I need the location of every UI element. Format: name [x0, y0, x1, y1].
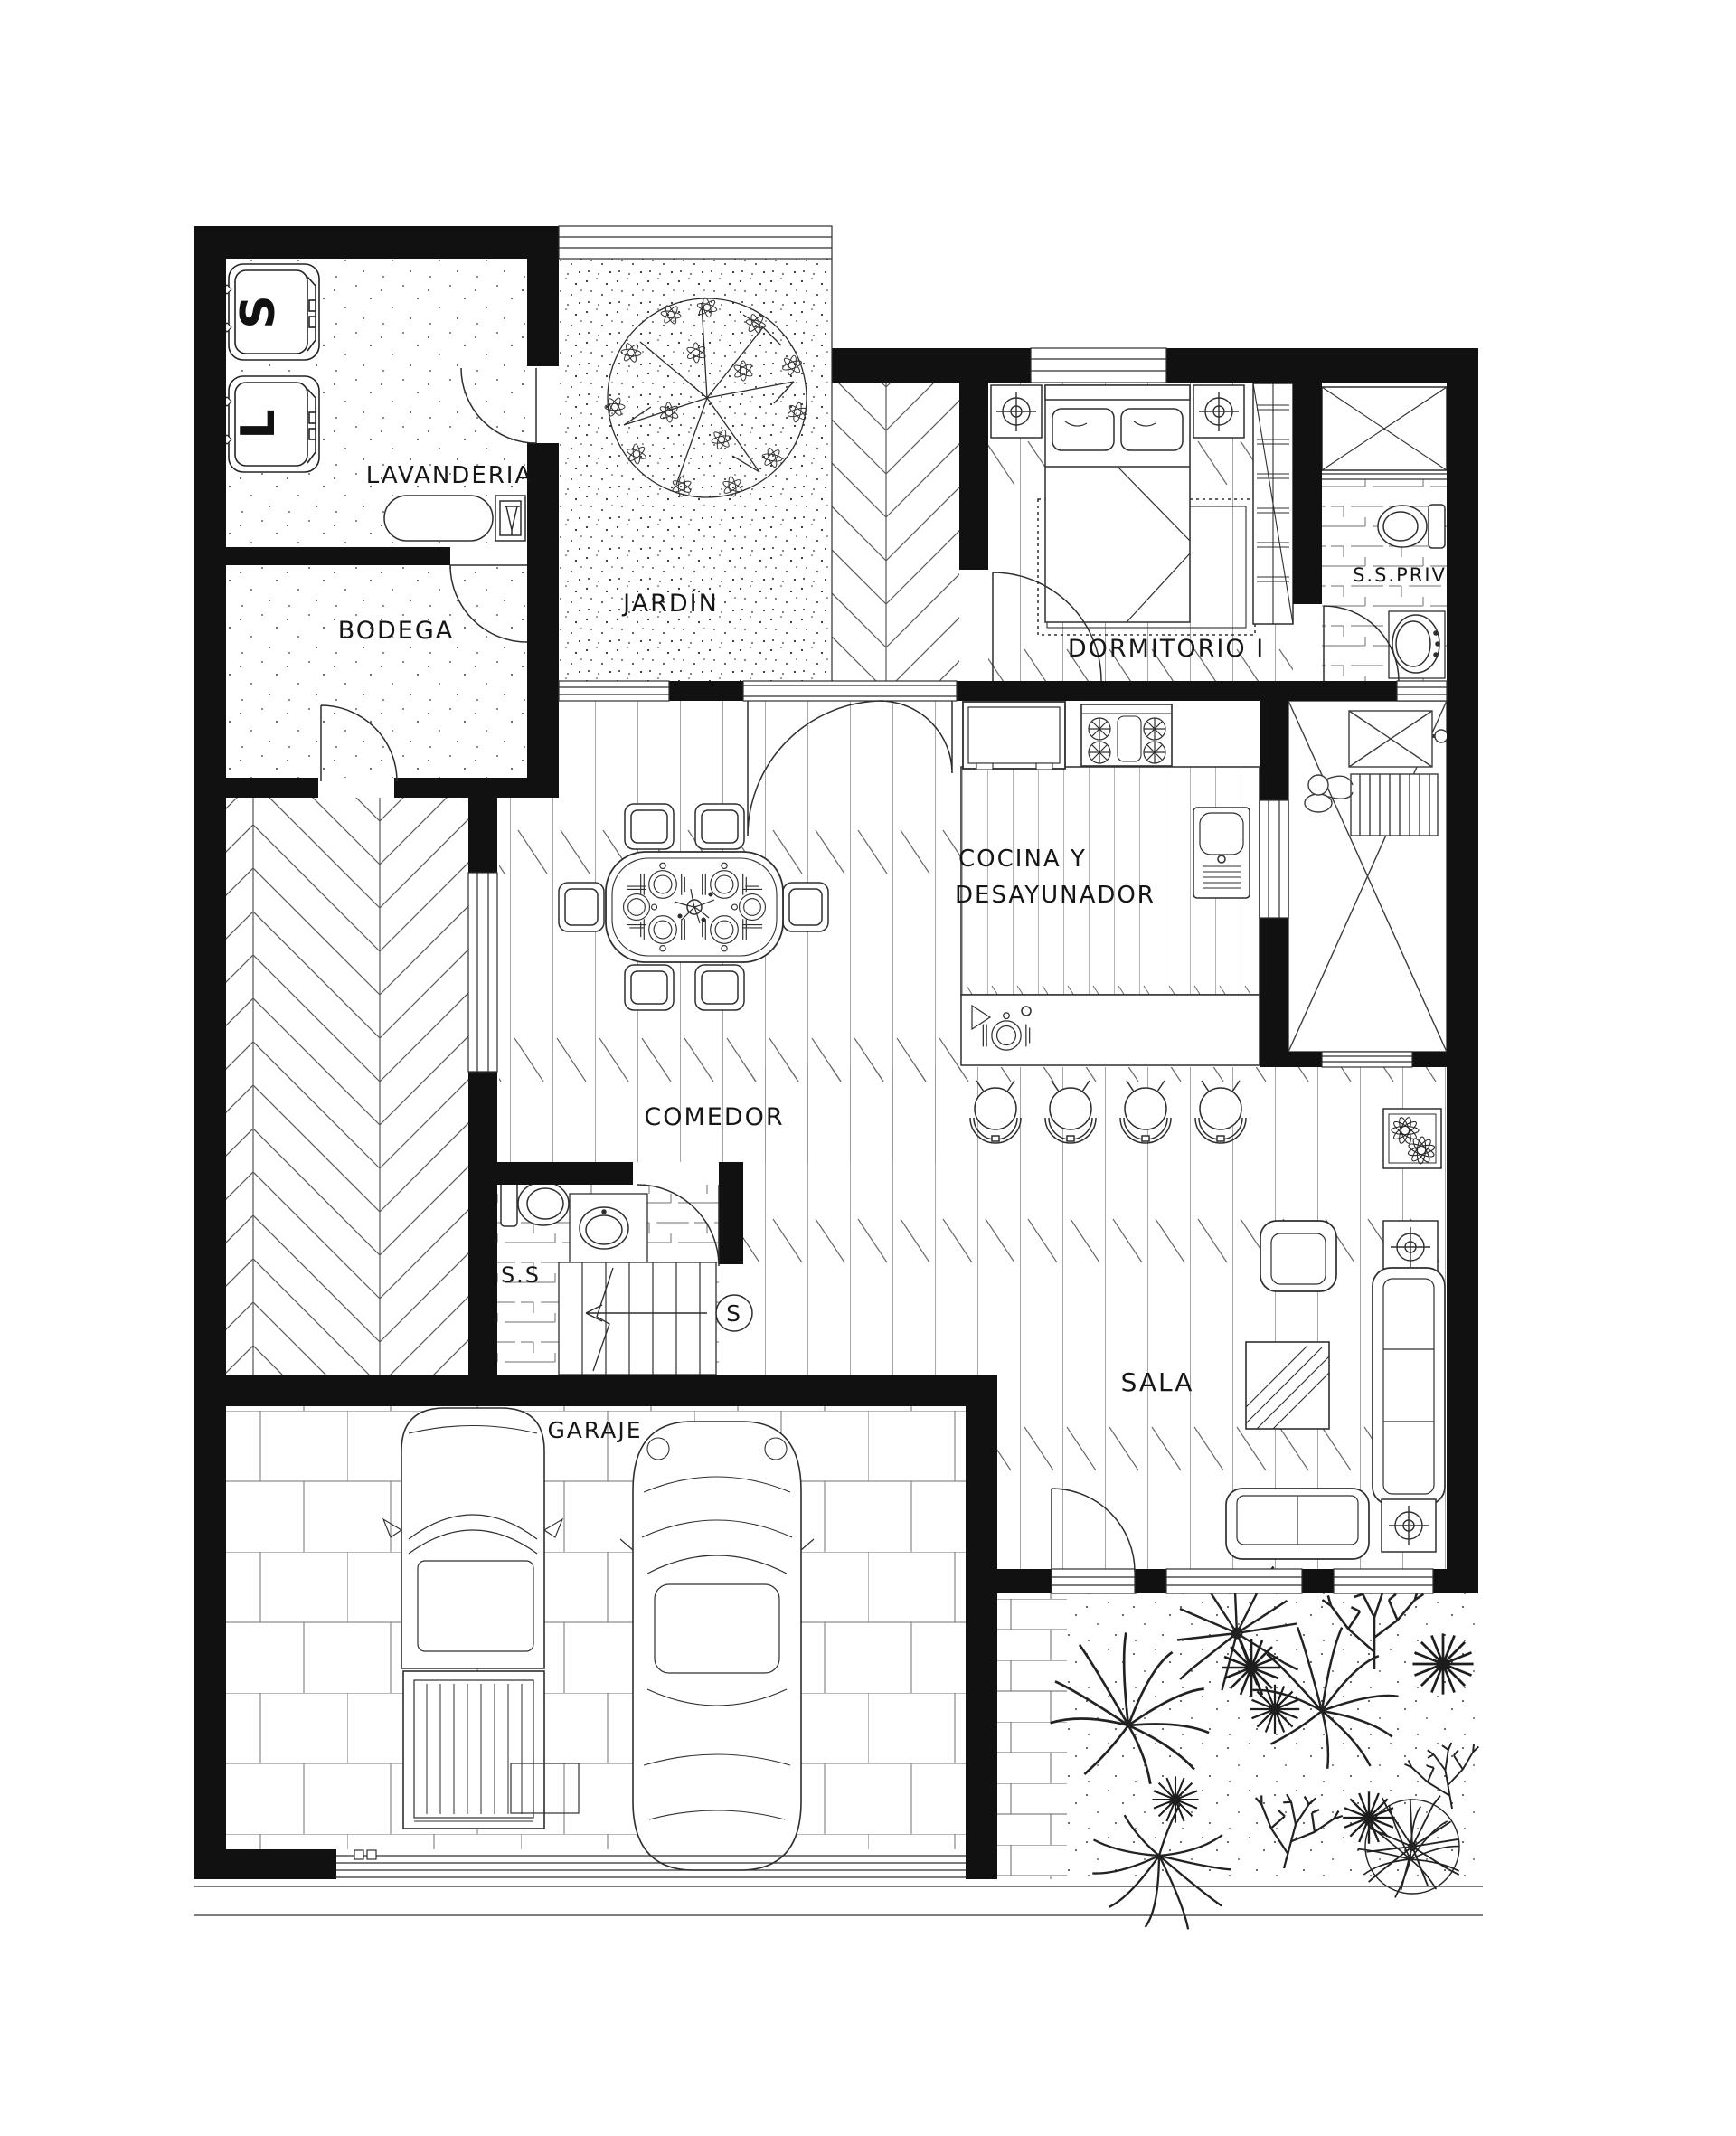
garaje-floor: [226, 1406, 966, 1849]
entry-threshold: [743, 681, 957, 701]
vanity-sink-ss: [570, 1194, 647, 1264]
plant-burst: [1250, 1685, 1299, 1734]
label-dormitorio: DORMITORIO I: [1068, 635, 1265, 663]
refrigerator: [963, 702, 1065, 770]
sspriv-window: [1397, 681, 1447, 701]
jardin-top-fence: [559, 226, 832, 259]
stair-up-letter: S: [726, 1300, 742, 1327]
closet: [1253, 383, 1293, 624]
label-sala: SALA: [1121, 1367, 1194, 1397]
drying-rack: [1351, 774, 1438, 836]
label-bodega: BODEGA: [338, 617, 455, 645]
skylight: [1322, 387, 1447, 479]
dormitorio-window: [1031, 348, 1166, 383]
label-ss: S.S: [501, 1262, 541, 1288]
kitchen-sink: [1193, 808, 1250, 898]
garden-ground: [1067, 1593, 1476, 1879]
bed: [1045, 385, 1190, 622]
label-comedor: COMEDOR: [644, 1103, 784, 1131]
sala-window-3: [1334, 1569, 1433, 1593]
label-cocina-1: COCINA Y: [958, 846, 1087, 873]
label-jardin: JARDÍN: [621, 589, 719, 618]
jardin-low-window: [559, 681, 669, 701]
sala-window-1: [1052, 1569, 1135, 1593]
plant-burst: [1152, 1776, 1198, 1822]
floor-plan-drawing: LAVANDERIA BODEGA JARDÍN DORMITORIO I S.…: [0, 0, 1736, 2136]
patio-window: [1322, 1052, 1412, 1067]
comedor-window: [468, 873, 497, 1072]
planter-box: [1383, 1109, 1441, 1168]
laundry-sink: [384, 496, 493, 541]
pillow: [1052, 409, 1114, 450]
label-lavanderia: LAVANDERIA: [366, 462, 533, 489]
plant-burst: [1222, 1639, 1280, 1697]
label-garaje: GARAJE: [547, 1417, 642, 1443]
washer-letter: L: [231, 409, 286, 439]
sala-floor-upper: [743, 1067, 1447, 1375]
breakfast-bar: [961, 995, 1260, 1065]
label-ss-priv: S.S.PRIV: [1353, 564, 1447, 586]
coffee-table: [1246, 1342, 1329, 1429]
entry-walk-herringbone: [832, 383, 959, 681]
plant-burst: [1412, 1633, 1473, 1694]
armchair: [1260, 1221, 1336, 1291]
truck-bed: [403, 1671, 544, 1829]
sofa-right: [1373, 1268, 1445, 1505]
pickup-truck: [383, 1408, 562, 1829]
loveseat: [1226, 1489, 1369, 1559]
utility-box: [495, 496, 525, 541]
sala-window-2: [1166, 1569, 1302, 1593]
stove: [1081, 704, 1172, 766]
cocina-window: [1260, 800, 1288, 918]
car: [620, 1422, 814, 1870]
toilet-priv: [1378, 505, 1445, 548]
dryer-letter: S: [231, 295, 286, 328]
service-patio: [1288, 701, 1448, 1052]
toilet-ss: [501, 1181, 569, 1226]
side-patio-herringbone: [226, 798, 468, 1375]
pillow: [1121, 409, 1183, 450]
floor-plan-page: LAVANDERIA BODEGA JARDÍN DORMITORIO I S.…: [0, 0, 1736, 2136]
label-cocina-2: DESAYUNADOR: [955, 882, 1156, 909]
comedor-floor-sliver: [499, 798, 559, 1162]
garden-path: [997, 1593, 1067, 1879]
bodega-floor: [226, 565, 527, 778]
